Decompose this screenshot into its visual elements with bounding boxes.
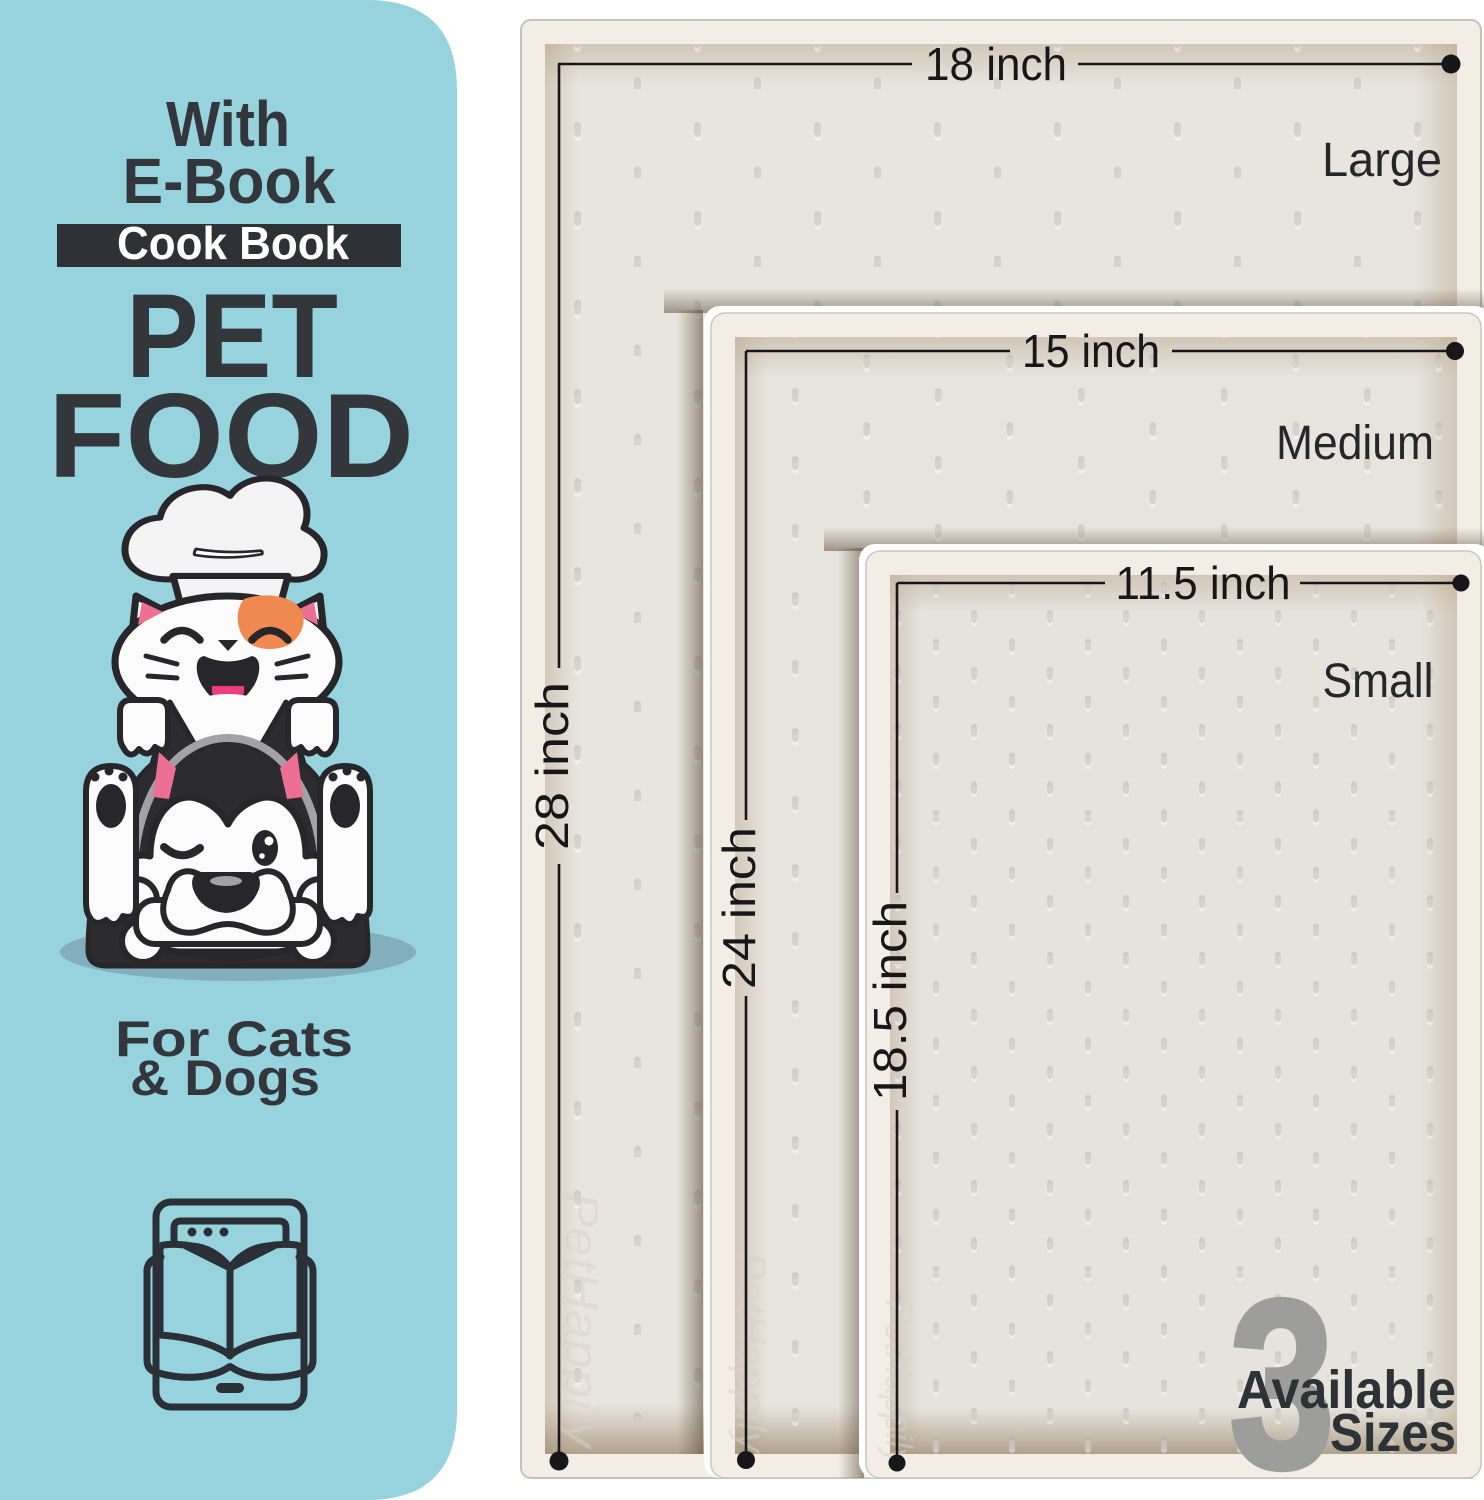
svg-text:Large: Large — [1322, 134, 1442, 187]
svg-text:PetHappily: PetHappily — [728, 1252, 775, 1455]
svg-text:Medium: Medium — [1276, 417, 1434, 470]
svg-text:18 inch: 18 inch — [925, 38, 1067, 90]
svg-text:15 inch: 15 inch — [1022, 325, 1160, 377]
svg-text:24 inch: 24 inch — [713, 827, 765, 989]
svg-text:Small: Small — [1323, 655, 1434, 708]
svg-text:11.5 inch: 11.5 inch — [1116, 557, 1291, 609]
svg-text:E-Book: E-Book — [123, 145, 336, 217]
svg-text:PetHappily: PetHappily — [556, 1192, 608, 1451]
svg-text:Cook Book: Cook Book — [117, 217, 349, 269]
svg-text:& Dogs: & Dogs — [130, 1050, 320, 1106]
svg-text:28 inch: 28 inch — [526, 682, 578, 850]
svg-text:Sizes: Sizes — [1330, 1403, 1456, 1463]
svg-text:18.5 inch: 18.5 inch — [864, 901, 916, 1101]
svg-text:FOOD: FOOD — [48, 369, 414, 503]
